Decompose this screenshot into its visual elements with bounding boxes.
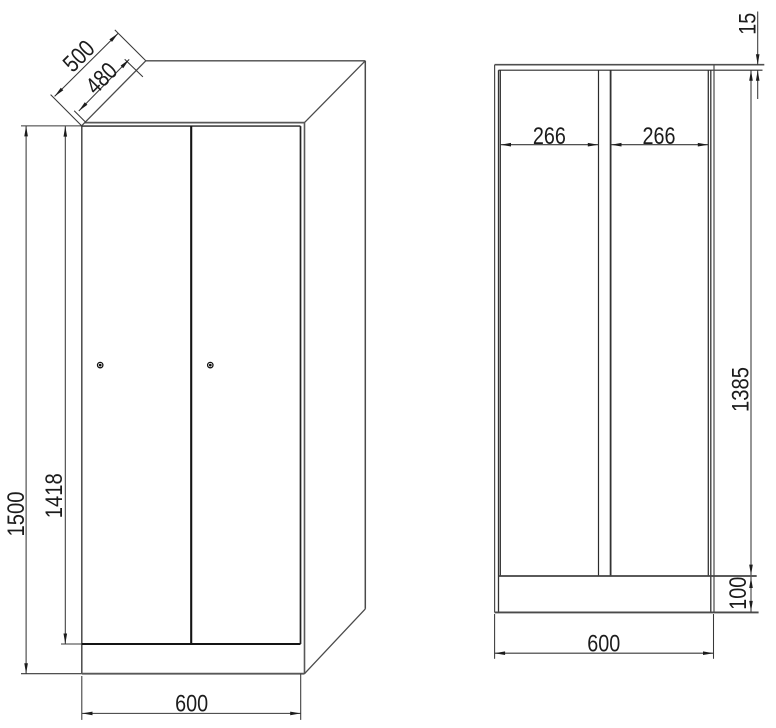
svg-text:1418: 1418 (41, 473, 68, 518)
svg-text:600: 600 (587, 630, 620, 657)
svg-text:100: 100 (725, 577, 752, 610)
svg-text:15: 15 (734, 13, 761, 35)
svg-text:1500: 1500 (3, 492, 30, 537)
svg-text:266: 266 (643, 123, 676, 150)
svg-text:600: 600 (175, 691, 208, 718)
svg-text:1385: 1385 (728, 367, 755, 412)
svg-text:266: 266 (533, 123, 566, 150)
